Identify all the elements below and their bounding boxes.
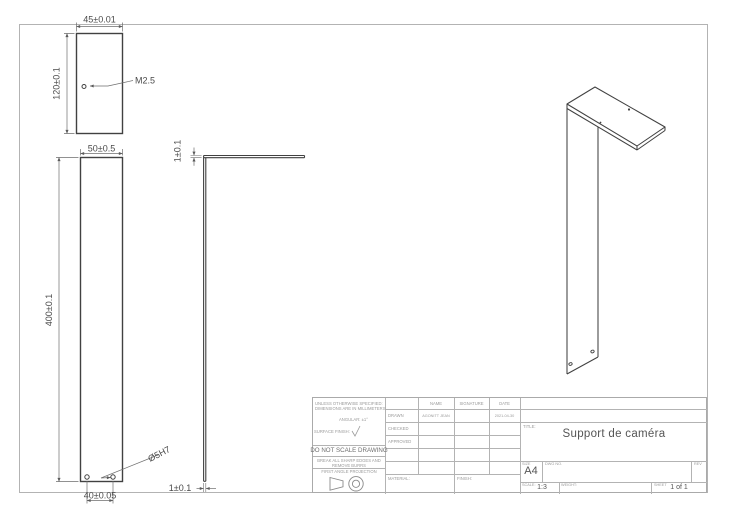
row-label-checked: CHECKED: [388, 426, 408, 431]
title-block: UNLESS OTHERWISE SPECIFIED: DIMENSIONS A…: [312, 397, 707, 493]
row-label-drawn: DRAWN: [388, 413, 404, 418]
finish-label: FINISH:: [457, 476, 472, 481]
front-view-width-dim: 50±0.5: [88, 144, 115, 154]
hole-spacing-dim: 40±0.05: [84, 491, 116, 501]
weight-label: WEIGHT:: [561, 483, 577, 487]
iso-hole-right: [590, 350, 594, 354]
drawing-title: Support de caméra: [520, 428, 708, 440]
col-header-date: DATE: [489, 398, 520, 409]
drawn-name: AGONITT JEAN: [418, 409, 454, 422]
drawing-sheet: 45±0.01 120±0.1 M2.5 50±0.5 400±0.1 Ø5H7…: [0, 0, 734, 519]
isometric-view: [567, 87, 665, 374]
row-label-approved: APPROVED: [388, 439, 411, 444]
front-view: 50±0.5 400±0.1 Ø5H7 40±0.05: [44, 144, 172, 504]
angular-tolerance-note: ANGULAR: ±1°: [339, 417, 368, 422]
dowel-hole-right: [111, 475, 115, 479]
surface-finish-label: SURFACE FINISH:: [314, 429, 350, 434]
surface-finish-icon: [351, 425, 365, 437]
iso-edge-point: [600, 122, 602, 124]
deburr-note-line2: REMOVE BURRS: [313, 463, 385, 468]
tolerance-note-line2: DIMENSIONS ARE IN MILLIMETERS: [315, 406, 386, 411]
hole-callout: Ø5H7: [146, 444, 171, 464]
tolerance-note-line1: UNLESS OTHERWISE SPECIFIED:: [315, 401, 383, 406]
dwg-no-label: DWG NO.: [545, 462, 562, 466]
side-view-top-thickness-dim: 1±0.1: [173, 140, 183, 162]
col-header-signature: SIGNATURE: [454, 398, 489, 409]
side-view: 1±0.1 1±0.1: [169, 140, 305, 493]
do-not-scale-note: DO NOT SCALE DRAWING: [313, 445, 385, 456]
drawn-date: 2021-04-30: [489, 409, 520, 422]
iso-tapped-hole: [628, 108, 630, 110]
top-view-width-dim: 45±0.01: [83, 15, 115, 25]
dowel-hole-left: [85, 475, 89, 479]
sheet-size: A4: [520, 465, 542, 477]
top-view-height-dim: 120±0.1: [52, 67, 62, 99]
thread-callout: M2.5: [135, 76, 155, 86]
material-label: MATERIAL:: [388, 476, 410, 481]
projection-label: FIRST ANGLE PROJECTION: [313, 469, 385, 474]
tapped-hole: [82, 85, 86, 89]
col-header-name: NAME: [418, 398, 454, 409]
top-view: 45±0.01 120±0.1 M2.5: [52, 15, 156, 134]
iso-hole-left: [568, 362, 572, 366]
rev-label: REV: [694, 462, 702, 466]
scale-value: 1:3: [530, 484, 554, 491]
front-view-height-dim: 400±0.1: [44, 294, 54, 326]
side-view-bottom-thickness-dim: 1±0.1: [169, 483, 191, 493]
sheet-value: 1 of 1: [659, 484, 699, 491]
first-angle-projection-icon: [329, 475, 369, 493]
